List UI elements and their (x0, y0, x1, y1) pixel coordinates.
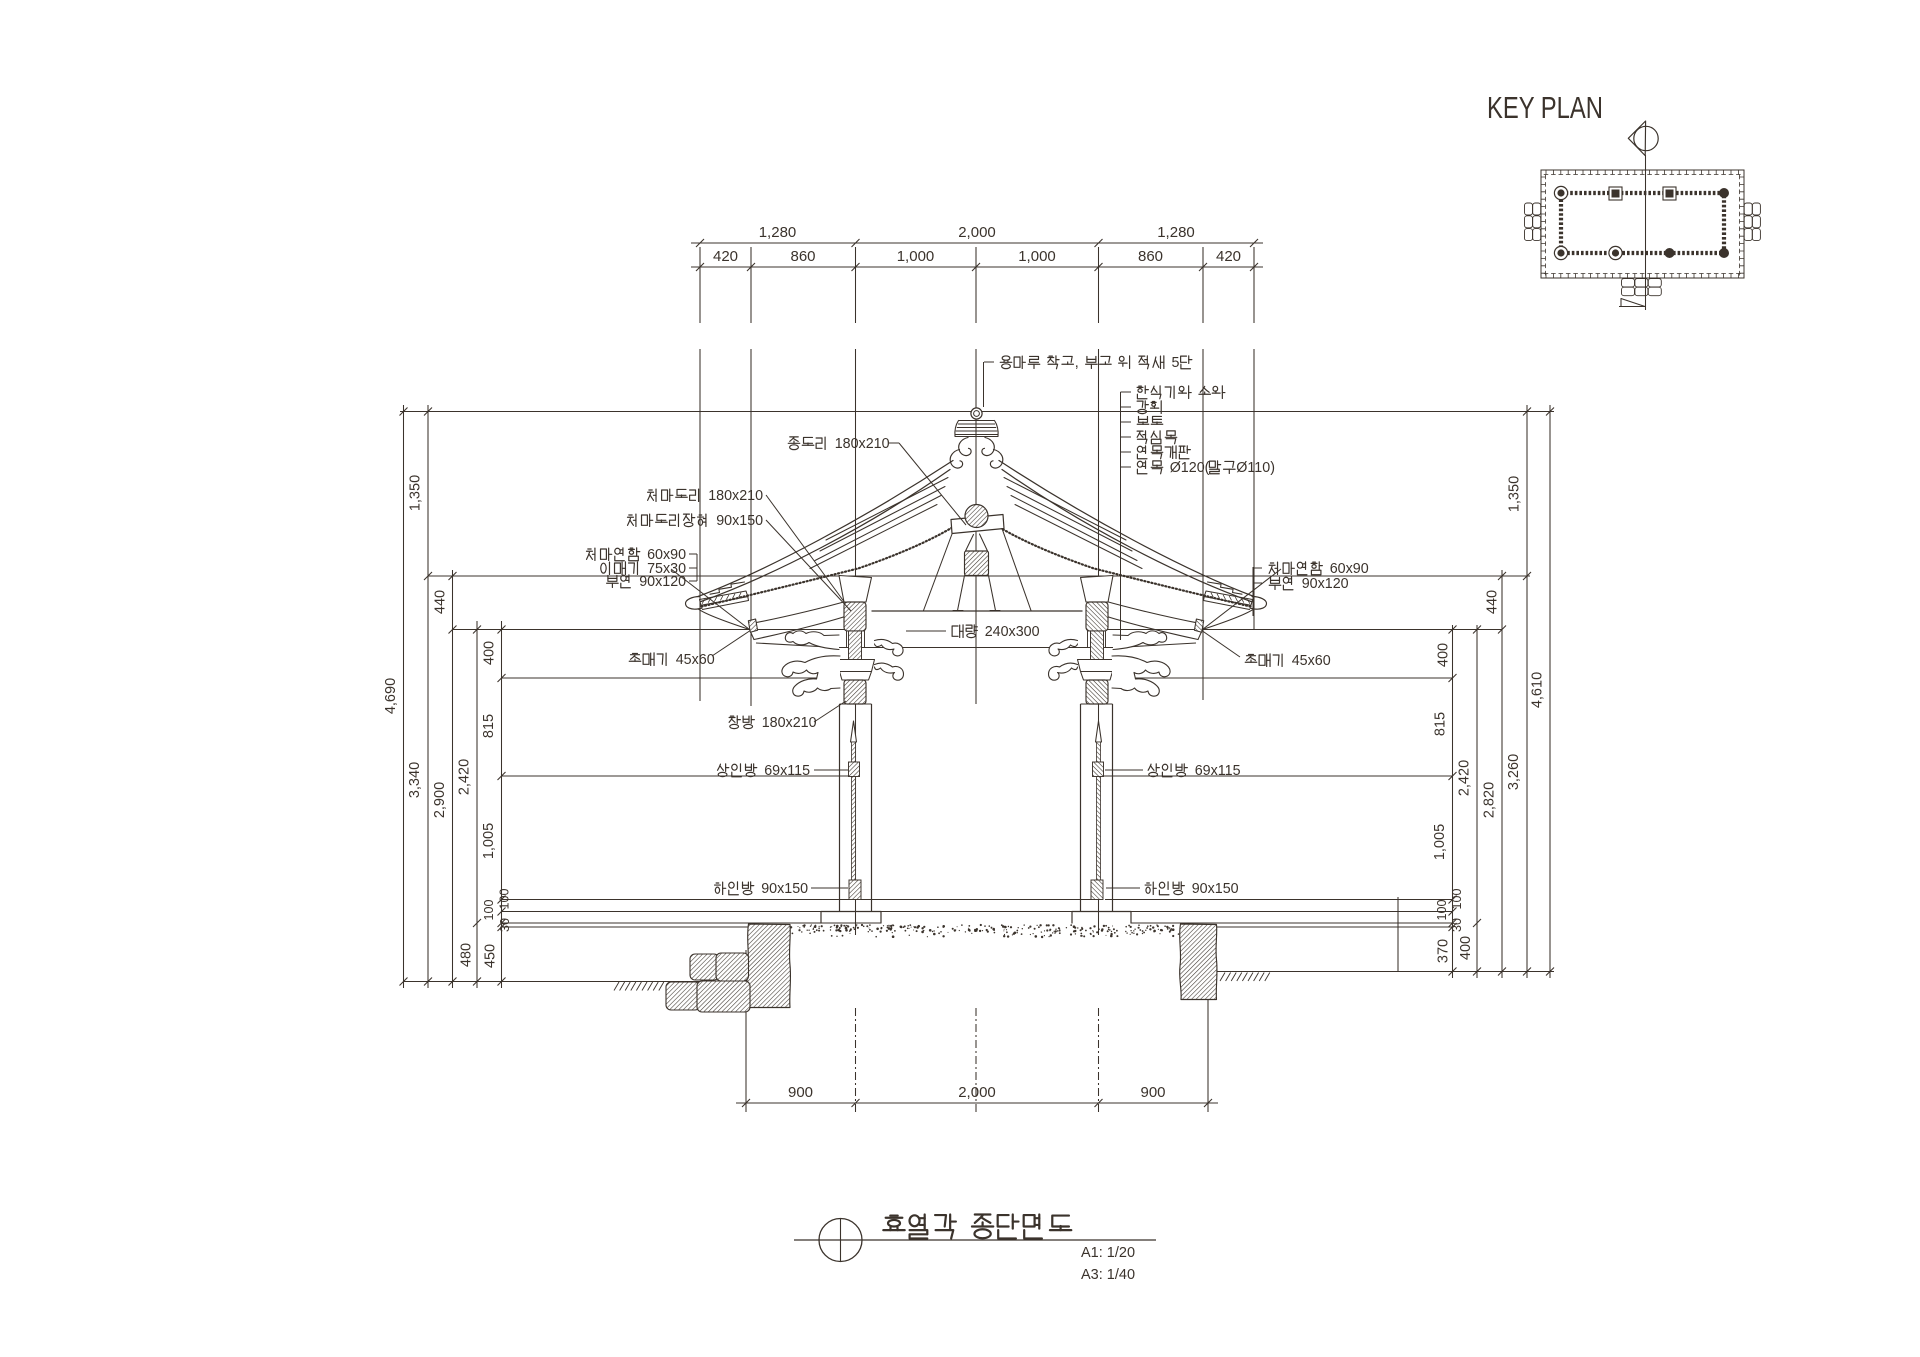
svg-text:90x150: 90x150 (761, 881, 808, 897)
svg-text:815: 815 (1433, 712, 1449, 736)
svg-text:100: 100 (498, 889, 512, 910)
svg-text:450: 450 (483, 944, 499, 968)
svg-text:900: 900 (1140, 1084, 1165, 1101)
svg-text:2,420: 2,420 (1457, 760, 1473, 796)
svg-text:Ø110): Ø110) (1236, 460, 1275, 476)
svg-text:90x150: 90x150 (1192, 881, 1239, 897)
svg-text:1,000: 1,000 (1018, 248, 1056, 265)
svg-text:1,000: 1,000 (897, 248, 935, 265)
svg-text:45x60: 45x60 (1292, 653, 1331, 669)
svg-text:440: 440 (433, 590, 449, 614)
svg-text:1,350: 1,350 (408, 475, 424, 511)
svg-text:4,690: 4,690 (383, 678, 399, 714)
svg-text:60x90: 60x90 (1330, 561, 1369, 577)
svg-text:2,000: 2,000 (958, 224, 996, 241)
svg-text:900: 900 (788, 1084, 813, 1101)
svg-text:Ø120(: Ø120( (1170, 460, 1210, 476)
svg-text:3,260: 3,260 (1506, 754, 1522, 790)
svg-text:1,280: 1,280 (1157, 224, 1195, 241)
svg-text:90x120: 90x120 (1302, 576, 1349, 592)
svg-text:2,820: 2,820 (1482, 782, 1498, 818)
svg-text:1,005: 1,005 (1432, 824, 1448, 860)
svg-text:KEY PLAN: KEY PLAN (1487, 90, 1603, 125)
svg-text:400: 400 (482, 641, 498, 665)
svg-text:370: 370 (1436, 939, 1452, 963)
svg-text:4,610: 4,610 (1530, 672, 1546, 708)
svg-text:420: 420 (1216, 248, 1241, 265)
svg-text:100: 100 (1435, 900, 1449, 921)
svg-text:180x210: 180x210 (708, 488, 763, 504)
svg-text:1,350: 1,350 (1507, 476, 1523, 512)
svg-text:69x115: 69x115 (1195, 763, 1241, 779)
svg-text:180x210: 180x210 (762, 715, 817, 731)
svg-text:480: 480 (459, 943, 475, 967)
svg-text:1,280: 1,280 (759, 224, 797, 241)
svg-text:100: 100 (1450, 889, 1464, 910)
svg-text:30: 30 (1450, 918, 1464, 932)
svg-text:860: 860 (1138, 248, 1163, 265)
svg-text:420: 420 (713, 248, 738, 265)
svg-text:45x60: 45x60 (676, 652, 715, 668)
svg-text:180x210: 180x210 (835, 436, 890, 452)
svg-text:815: 815 (481, 714, 497, 738)
svg-text:2,900: 2,900 (432, 782, 448, 818)
svg-text:1,005: 1,005 (481, 823, 497, 859)
svg-text:90x150: 90x150 (716, 513, 763, 529)
svg-text:,: , (1075, 355, 1079, 371)
svg-text:A3: 1/40: A3: 1/40 (1081, 1267, 1135, 1283)
svg-text:5: 5 (1172, 355, 1180, 371)
svg-text:400: 400 (1436, 643, 1452, 667)
svg-text:30: 30 (498, 918, 512, 932)
svg-text:A1: 1/20: A1: 1/20 (1081, 1245, 1135, 1261)
svg-text:2,000: 2,000 (958, 1084, 996, 1101)
svg-text:860: 860 (790, 248, 815, 265)
svg-text:69x115: 69x115 (764, 763, 810, 779)
svg-text:240x300: 240x300 (985, 624, 1040, 640)
svg-text:100: 100 (482, 900, 496, 921)
svg-text:440: 440 (1485, 590, 1501, 614)
svg-text:2,420: 2,420 (457, 759, 473, 795)
svg-text:90x120: 90x120 (639, 574, 686, 590)
svg-text:400: 400 (1458, 936, 1474, 960)
svg-text:3,340: 3,340 (407, 762, 423, 798)
